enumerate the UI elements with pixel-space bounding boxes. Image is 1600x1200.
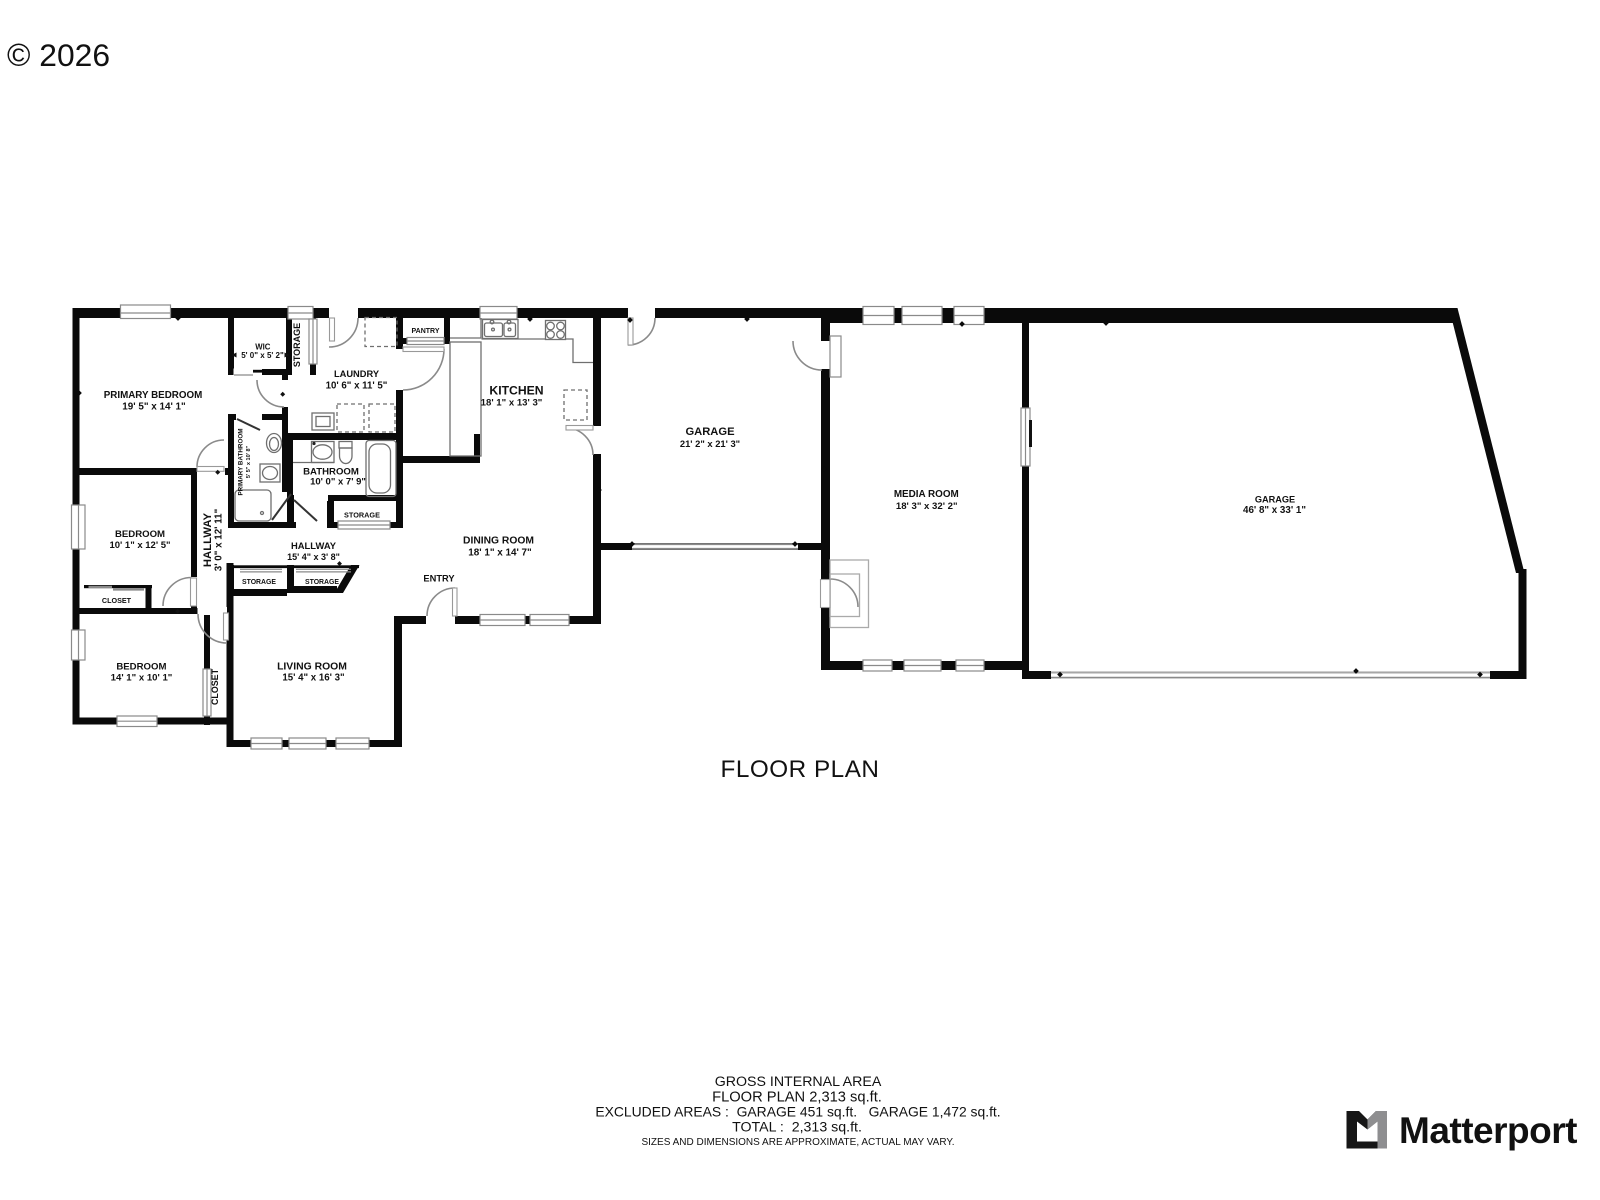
- svg-text:CLOSET: CLOSET: [102, 596, 132, 605]
- svg-text:PRIMARY BEDROOM: PRIMARY BEDROOM: [104, 390, 203, 401]
- svg-text:LAUNDRY: LAUNDRY: [334, 369, 380, 379]
- svg-text:TOTAL : 2,313 sq.ft.: TOTAL : 2,313 sq.ft.: [732, 1120, 862, 1136]
- svg-text:MEDIA ROOM: MEDIA ROOM: [894, 489, 959, 500]
- svg-text:18' 1" x 14' 7": 18' 1" x 14' 7": [468, 548, 532, 559]
- svg-text:18' 3" x 32' 2": 18' 3" x 32' 2": [896, 501, 958, 512]
- svg-text:HALLWAY: HALLWAY: [291, 540, 337, 551]
- svg-text:EXCLUDED AREAS : GARAGE 451 s: EXCLUDED AREAS : GARAGE 451 sq.ft. GARAG…: [595, 1104, 1000, 1120]
- svg-text:18' 1" x 13' 3": 18' 1" x 13' 3": [481, 398, 543, 409]
- svg-text:FLOOR PLAN: FLOOR PLAN: [721, 756, 880, 783]
- svg-text:15' 4" x 16' 3": 15' 4" x 16' 3": [282, 673, 344, 684]
- svg-text:19' 5" x 14' 1": 19' 5" x 14' 1": [122, 402, 186, 413]
- svg-text:CLOSET: CLOSET: [210, 668, 220, 705]
- svg-text:DINING ROOM: DINING ROOM: [463, 535, 534, 546]
- svg-text:HALLWAY: HALLWAY: [202, 512, 214, 567]
- svg-text:ENTRY: ENTRY: [423, 574, 455, 584]
- svg-text:PANTRY: PANTRY: [412, 328, 440, 335]
- svg-text:STORAGE: STORAGE: [305, 579, 339, 586]
- svg-text:46' 8" x 33' 1": 46' 8" x 33' 1": [1243, 505, 1306, 516]
- svg-text:PRIMARY BATHROOM: PRIMARY BATHROOM: [238, 428, 245, 495]
- svg-text:10' 0" x 7' 9": 10' 0" x 7' 9": [310, 477, 366, 488]
- svg-text:STORAGE: STORAGE: [344, 511, 380, 520]
- svg-text:GARAGE: GARAGE: [685, 426, 735, 438]
- svg-text:3' 0" x 12' 11": 3' 0" x 12' 11": [213, 509, 224, 571]
- svg-text:LIVING ROOM: LIVING ROOM: [277, 662, 347, 673]
- svg-text:14' 1" x 10' 1": 14' 1" x 10' 1": [111, 673, 173, 684]
- svg-text:21' 2" x 21' 3": 21' 2" x 21' 3": [680, 438, 740, 449]
- svg-text:GROSS INTERNAL AREA: GROSS INTERNAL AREA: [715, 1074, 882, 1090]
- svg-text:SIZES AND DIMENSIONS ARE APPRO: SIZES AND DIMENSIONS ARE APPROXIMATE, AC…: [641, 1137, 954, 1148]
- svg-text:Matterport: Matterport: [1399, 1110, 1577, 1151]
- svg-text:GARAGE: GARAGE: [1255, 495, 1295, 505]
- svg-text:BEDROOM: BEDROOM: [116, 662, 166, 673]
- svg-text:5' 0" x 5' 2": 5' 0" x 5' 2": [241, 351, 284, 360]
- svg-text:10' 6" x 11' 5": 10' 6" x 11' 5": [326, 381, 388, 392]
- svg-text:BEDROOM: BEDROOM: [115, 529, 165, 540]
- svg-text:STORAGE: STORAGE: [242, 579, 276, 586]
- svg-text:15' 4" x 3' 8": 15' 4" x 3' 8": [287, 552, 340, 562]
- svg-text:5' 5" x 10' 8": 5' 5" x 10' 8": [246, 445, 252, 478]
- svg-text:© 2026: © 2026: [7, 37, 110, 73]
- svg-text:KITCHEN: KITCHEN: [489, 383, 543, 397]
- svg-text:STORAGE: STORAGE: [292, 323, 302, 367]
- svg-text:10' 1" x 12' 5": 10' 1" x 12' 5": [109, 540, 170, 551]
